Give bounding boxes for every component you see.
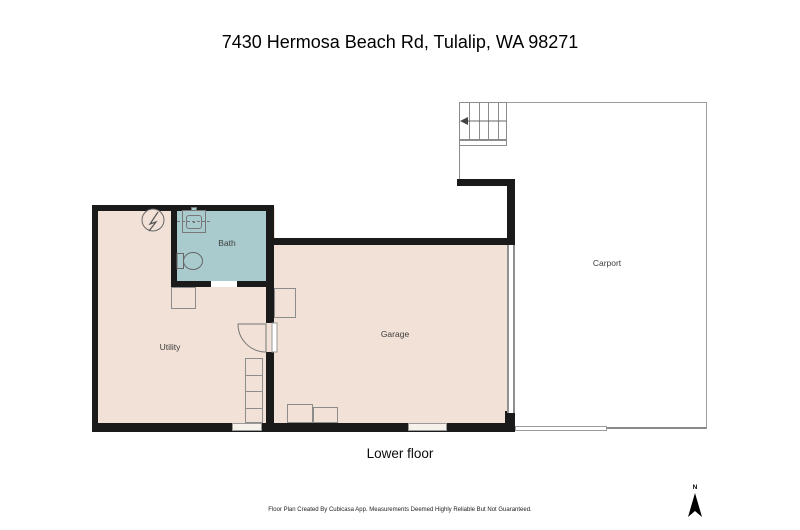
wall-garage-top bbox=[266, 238, 515, 245]
footer-note: Floor Plan Created By Cubicasa App. Meas… bbox=[0, 507, 800, 513]
stair-tread bbox=[498, 103, 499, 139]
page-title: 7430 Hermosa Beach Rd, Tulalip, WA 98271 bbox=[0, 32, 800, 53]
storage-box bbox=[313, 407, 338, 423]
stairs-landing bbox=[459, 140, 507, 146]
stair-tread bbox=[488, 103, 489, 139]
shelf-divider bbox=[246, 375, 262, 376]
carport-edge-line bbox=[459, 146, 460, 180]
threshold bbox=[408, 423, 447, 431]
stair-tread bbox=[479, 103, 480, 139]
wall-entry-v bbox=[507, 179, 515, 245]
wall-garage-corner bbox=[505, 411, 515, 432]
compass-label: N bbox=[687, 484, 703, 491]
floor-plan-page: 7430 Hermosa Beach Rd, Tulalip, WA 98271 bbox=[0, 0, 800, 530]
shelf-unit bbox=[245, 358, 263, 423]
wall-bottom bbox=[92, 423, 515, 432]
shelf-divider bbox=[246, 408, 262, 409]
stair-tread bbox=[469, 103, 470, 139]
storage-box bbox=[287, 404, 313, 423]
cabinet bbox=[171, 287, 196, 309]
garage-overhead-door bbox=[507, 245, 515, 413]
north-arrow-icon bbox=[688, 493, 702, 517]
room-label-carport: Carport bbox=[593, 258, 621, 268]
storage-box bbox=[274, 288, 296, 318]
threshold bbox=[232, 423, 262, 431]
walkway-strip bbox=[515, 426, 607, 431]
wall-bath-left bbox=[171, 205, 177, 287]
wall-left bbox=[92, 205, 98, 432]
room-label-bath: Bath bbox=[218, 238, 236, 248]
room-label-utility: Utility bbox=[160, 342, 181, 352]
floor-label: Lower floor bbox=[0, 446, 800, 461]
counter-edge-line bbox=[177, 221, 210, 222]
bath-door-opening bbox=[211, 281, 237, 287]
room-label-garage: Garage bbox=[381, 329, 409, 339]
garage-door-opening bbox=[266, 323, 274, 352]
shelf-divider bbox=[246, 391, 262, 392]
stairs bbox=[459, 102, 507, 140]
sink-tap-icon bbox=[191, 207, 197, 211]
